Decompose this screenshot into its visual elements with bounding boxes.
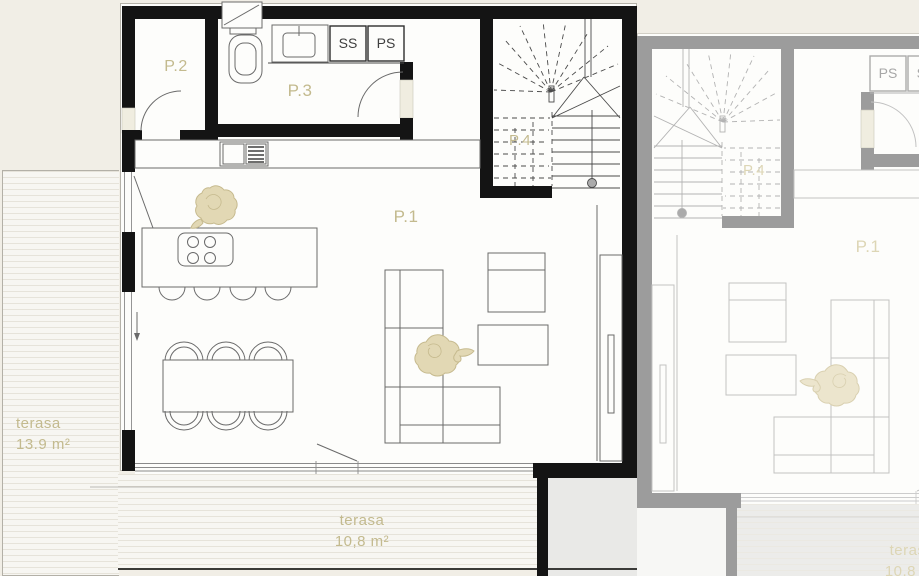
floor-plan-unit-left: P.1 P.2 P.3 P.4 SS PS terasa 13.9 m² ter…	[0, 0, 640, 576]
bottom-terrace-area: 10,8 m²	[295, 531, 429, 552]
floor-plan-unit-right-clip: P.1 P.2 P.3 P.4 SS PS terasa 13.9 m² ter…	[637, 30, 919, 576]
floorplan-canvas: P.1 P.2 P.3 P.4 SS PS terasa 13.9 m² ter…	[0, 0, 919, 576]
plan-linework	[637, 30, 919, 576]
floor-plan-unit-right-mirrored: P.1 P.2 P.3 P.4 SS PS terasa 13.9 m² ter…	[637, 30, 919, 576]
staircase	[654, 49, 780, 218]
dining-set	[163, 342, 293, 430]
bottom-terrace-name: terasa	[295, 510, 429, 531]
armchair	[729, 283, 786, 342]
bottom-terrace-area: 10,8 m²	[845, 561, 919, 576]
windows	[741, 202, 919, 504]
side-terrace-name: terasa	[16, 413, 116, 434]
plants	[191, 186, 474, 376]
room-label-p4: P.4	[732, 162, 776, 179]
plan-sheet	[638, 34, 919, 501]
plan-sheet	[121, 4, 637, 471]
closet-label-ss: SS	[908, 56, 919, 91]
side-terrace-area: 13.9 m²	[16, 434, 116, 455]
bottom-terrace-name: terasa	[845, 540, 919, 561]
sectional-sofa	[774, 300, 889, 473]
coffee-table	[478, 325, 548, 365]
site-boundary-line	[118, 568, 637, 570]
plant-living	[814, 365, 860, 406]
side-terrace-label: terasa 13.9 m²	[16, 413, 116, 455]
side-terrace-decking	[2, 170, 119, 576]
room-label-p1: P.1	[846, 237, 890, 257]
tv-cabinet	[600, 255, 622, 461]
neighbor-terrace-area	[548, 478, 637, 576]
windows	[122, 172, 533, 474]
living-room	[385, 205, 622, 461]
closet-label-ss: SS	[330, 26, 366, 61]
plant-living	[415, 335, 461, 376]
dining-table	[163, 360, 293, 412]
walls	[637, 36, 919, 576]
kitchen	[135, 140, 480, 300]
room-label-p4: P.4	[498, 132, 542, 149]
neighbor-terrace-area	[637, 508, 726, 576]
sectional-sofa	[385, 270, 500, 443]
tv-cabinet	[652, 285, 674, 491]
kitchen-island	[142, 228, 317, 287]
closet-label-ps: PS	[368, 26, 404, 61]
coffee-table	[726, 355, 796, 395]
staircase	[494, 19, 620, 188]
armchair	[488, 253, 545, 312]
bottom-terrace-label: terasa 10,8 m²	[845, 540, 919, 576]
room-label-p2: P.2	[156, 58, 196, 76]
living-room	[652, 235, 889, 491]
closet-label-ps: PS	[870, 56, 906, 91]
room-label-p3: P.3	[278, 81, 322, 101]
room-label-p1: P.1	[384, 207, 428, 227]
plant-kitchen	[196, 186, 238, 225]
door-swings	[871, 102, 919, 161]
bottom-terrace-label: terasa 10,8 m²	[295, 510, 429, 552]
door-swings	[141, 72, 403, 131]
